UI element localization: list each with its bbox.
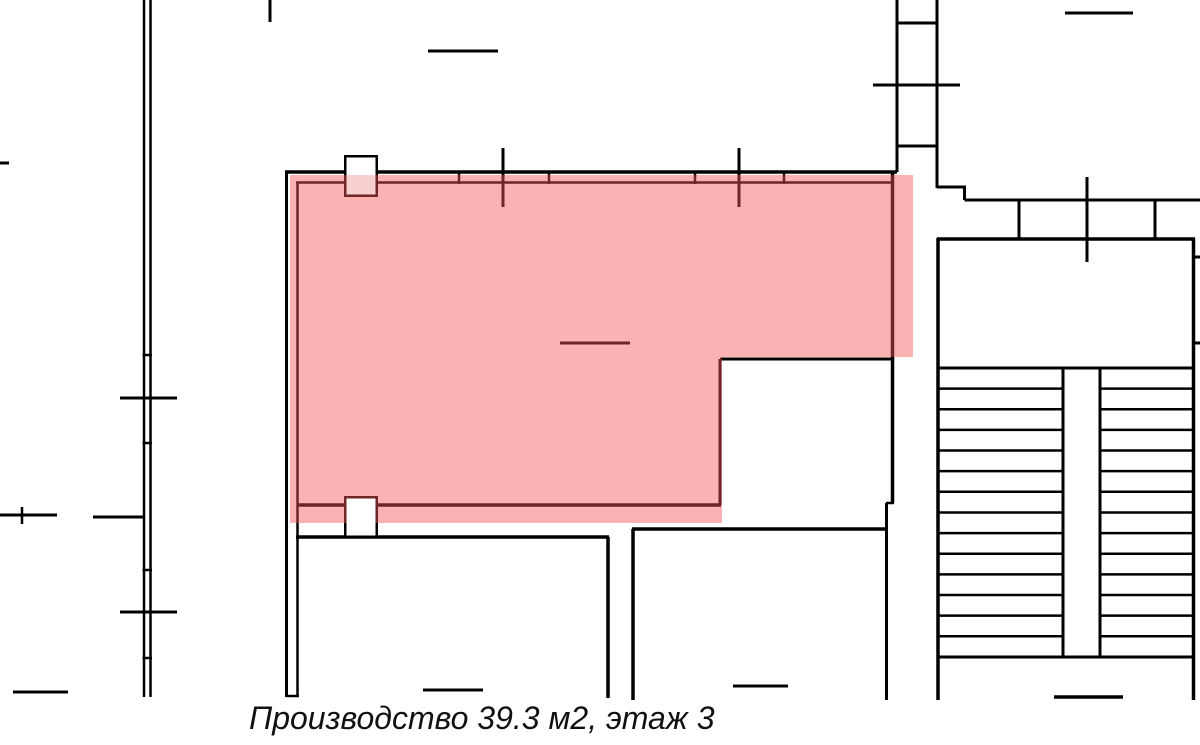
floor-plan-svg [0,0,1200,745]
door-symbol-fill [347,158,376,176]
room-highlight[interactable] [290,357,722,523]
room-caption: Производство 39.3 м2, этаж 3 [249,699,715,737]
floor-plan-page: Производство 39.3 м2, этаж 3 [0,0,1200,745]
door-symbol-fill [347,175,376,195]
room-highlight-layer[interactable] [290,175,913,523]
door-symbol-fill [347,499,376,536]
room-highlight[interactable] [290,175,913,357]
